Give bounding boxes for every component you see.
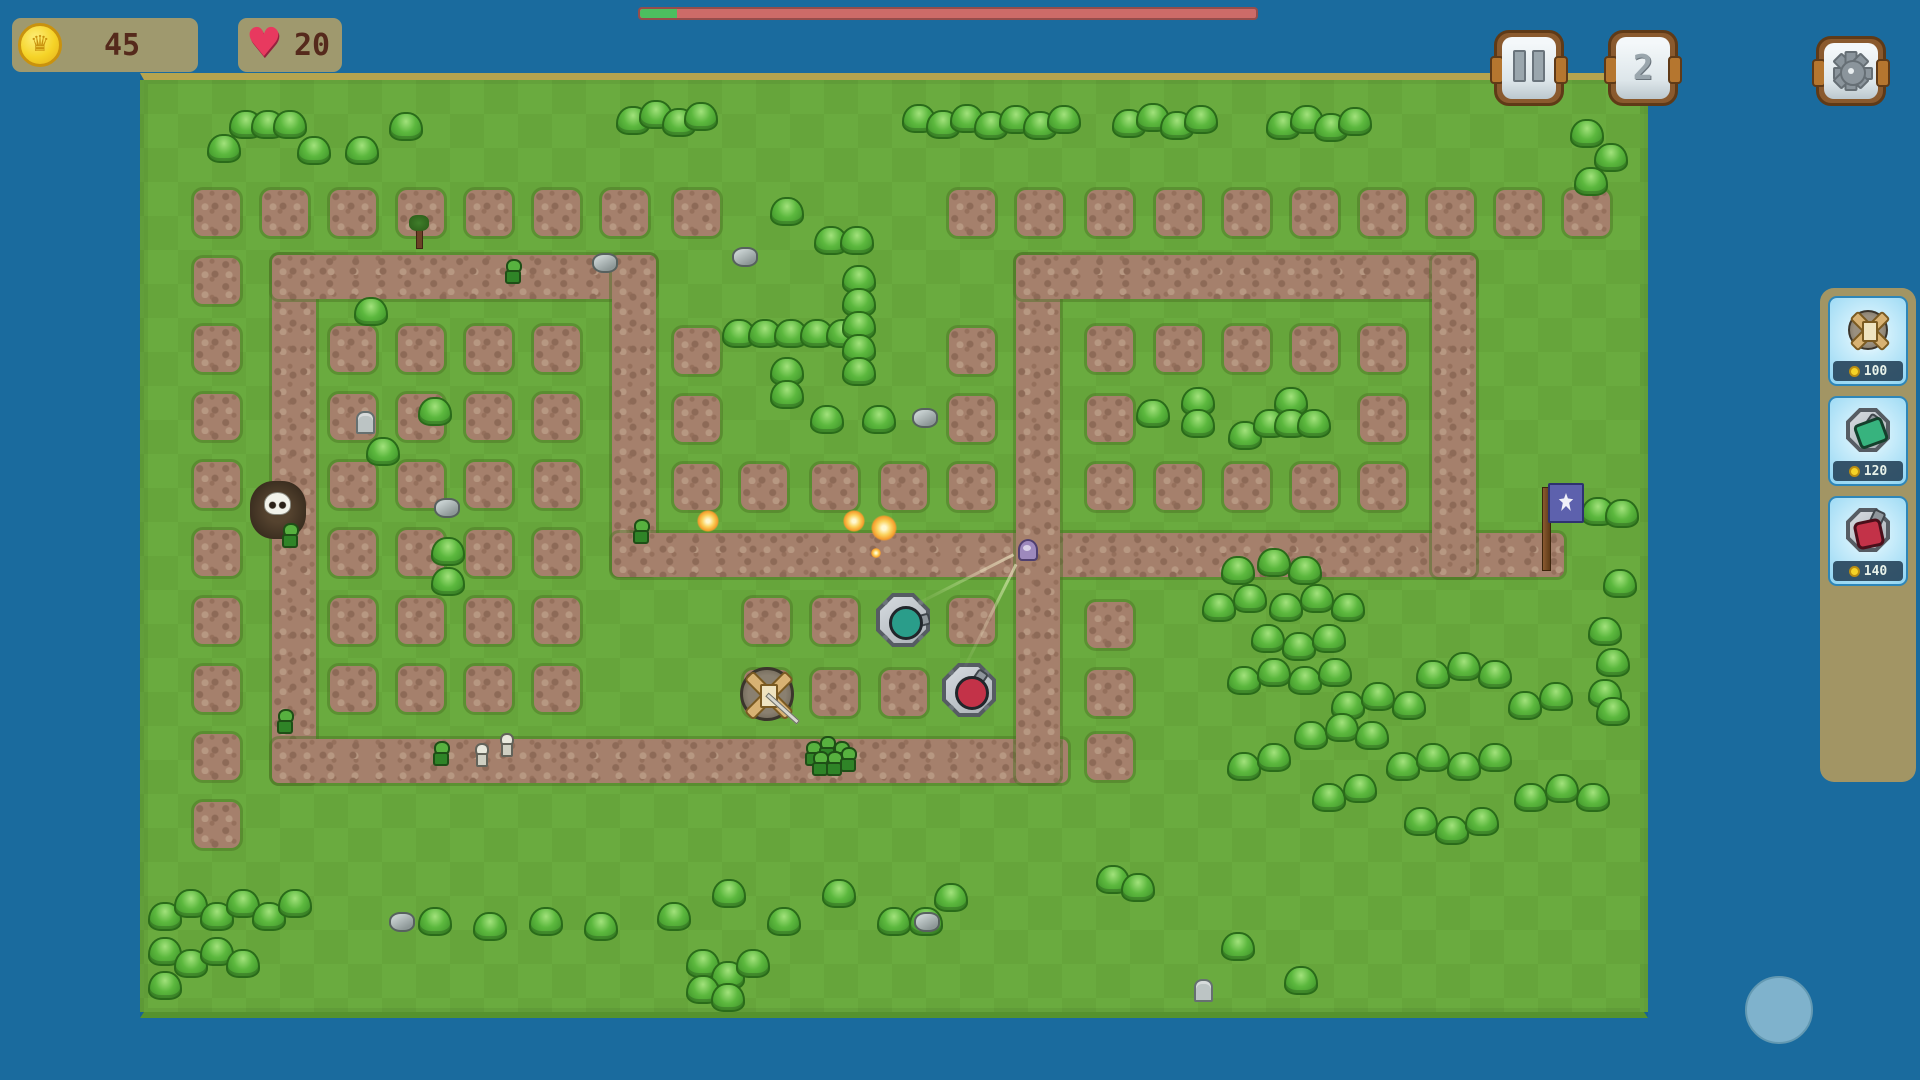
enemy-goblin — [276, 709, 292, 732]
goal-flag-icon — [1548, 483, 1584, 523]
bush — [684, 102, 718, 131]
game-map[interactable] — [140, 73, 1648, 1018]
bush — [1312, 783, 1346, 812]
price-label: 100 — [1864, 364, 1887, 379]
bush — [736, 949, 770, 978]
dirt-patch — [1087, 190, 1133, 236]
dirt-patch — [1292, 326, 1338, 372]
bush — [1269, 593, 1303, 622]
dirt-patch — [398, 666, 444, 712]
dirt-patch — [1017, 190, 1063, 236]
dirt-path-segment — [1432, 255, 1476, 577]
dead-tree — [409, 215, 429, 249]
dirt-patch — [1087, 396, 1133, 442]
bush — [1300, 584, 1334, 613]
price-label: 120 — [1864, 464, 1887, 479]
bush — [1227, 666, 1261, 695]
bush — [1596, 648, 1630, 677]
bush — [1576, 783, 1610, 812]
enemy-ghost — [1018, 539, 1038, 561]
dirt-patch — [1564, 190, 1610, 236]
dirt-path-segment — [272, 739, 1068, 783]
bush — [810, 405, 844, 434]
enemy-goblin — [432, 741, 448, 764]
bush — [226, 949, 260, 978]
dirt-patch — [194, 598, 240, 644]
bush — [1221, 556, 1255, 585]
bush — [1288, 556, 1322, 585]
rock — [732, 247, 758, 267]
coin-icon: ♛ — [18, 23, 62, 67]
wave-progress-bar — [638, 7, 1258, 20]
bush — [1282, 632, 1316, 661]
dirt-path-segment — [612, 533, 1564, 577]
bush — [1508, 691, 1542, 720]
bush — [389, 112, 423, 141]
bush — [366, 437, 400, 466]
dirt-patch — [466, 190, 512, 236]
gravestone — [356, 411, 375, 434]
dirt-patch — [194, 802, 240, 848]
dirt-patch — [466, 462, 512, 508]
lives-count: 20 — [294, 28, 330, 63]
dirt-path-segment — [1016, 255, 1060, 783]
bush — [1338, 107, 1372, 136]
bush — [1294, 721, 1328, 750]
coin-count: 45 — [104, 28, 140, 63]
gear-icon — [1829, 49, 1873, 93]
bush — [770, 380, 804, 409]
bush — [1288, 666, 1322, 695]
dirt-patch — [1360, 464, 1406, 510]
bush — [1545, 774, 1579, 803]
bush — [1184, 105, 1218, 134]
dirt-patch — [812, 670, 858, 716]
rock — [434, 498, 460, 518]
coin-icon — [1849, 566, 1860, 577]
coin-icon — [1849, 466, 1860, 477]
bush — [767, 907, 801, 936]
coin-counter-panel: ♛ 45 — [12, 18, 198, 72]
dirt-patch — [466, 666, 512, 712]
wave-progress-fill — [640, 9, 677, 18]
bush — [1570, 119, 1604, 148]
dirt-patch — [194, 190, 240, 236]
bush — [297, 136, 331, 165]
dirt-patch — [1156, 464, 1202, 510]
explosion-effect — [871, 515, 897, 541]
dirt-patch — [1224, 464, 1270, 510]
dirt-patch — [1496, 190, 1542, 236]
enemy-skeleton — [474, 743, 488, 765]
speed-button[interactable]: 2 — [1608, 30, 1678, 106]
dirt-patch — [534, 326, 580, 372]
enemy-skeleton — [499, 733, 513, 755]
dirt-patch — [534, 462, 580, 508]
price-label: 140 — [1864, 564, 1887, 579]
dirt-patch — [194, 258, 240, 304]
bush — [418, 397, 452, 426]
dirt-patch — [534, 598, 580, 644]
dirt-patch — [881, 464, 927, 510]
dirt-patch — [330, 326, 376, 372]
bush — [1121, 873, 1155, 902]
bush — [842, 357, 876, 386]
shop-card-crossbow-tower[interactable]: 100 — [1828, 296, 1908, 386]
dirt-patch — [194, 326, 240, 372]
dirt-patch — [398, 598, 444, 644]
dirt-patch — [949, 464, 995, 510]
dirt-patch — [1087, 464, 1133, 510]
dirt-patch — [602, 190, 648, 236]
shop-card-red-cannon-tower[interactable]: 140 — [1828, 496, 1908, 586]
bush — [473, 912, 507, 941]
dirt-patch — [674, 464, 720, 510]
bush — [1227, 752, 1261, 781]
dirt-patch — [674, 396, 720, 442]
dirt-patch — [466, 598, 512, 644]
dirt-patch — [398, 326, 444, 372]
dirt-patch — [534, 666, 580, 712]
settings-button[interactable] — [1816, 36, 1886, 106]
dirt-patch — [1156, 190, 1202, 236]
bush — [1392, 691, 1426, 720]
dirt-patch — [1087, 734, 1133, 780]
dirt-patch — [534, 530, 580, 576]
speed-label: 2 — [1633, 48, 1653, 88]
dirt-patch — [1360, 190, 1406, 236]
bush — [1603, 569, 1637, 598]
bush — [1435, 816, 1469, 845]
rock — [389, 912, 415, 932]
bush — [934, 883, 968, 912]
cannon-tower[interactable] — [942, 663, 996, 717]
dirt-patch — [741, 464, 787, 510]
dirt-patch — [812, 598, 858, 644]
bush — [273, 110, 307, 139]
bush — [148, 971, 182, 1000]
dirt-patch — [330, 666, 376, 712]
bush — [1297, 409, 1331, 438]
bush — [1404, 807, 1438, 836]
bush — [584, 912, 618, 941]
enemy-goblin — [839, 747, 855, 770]
dirt-patch — [194, 666, 240, 712]
dirt-patch — [674, 328, 720, 374]
heart-icon: ♥ — [246, 20, 282, 66]
bush — [1465, 807, 1499, 836]
enemy-goblin — [632, 519, 648, 542]
dirt-patch — [1428, 190, 1474, 236]
dirt-patch — [812, 464, 858, 510]
bush — [1447, 752, 1481, 781]
explosion-effect — [697, 510, 719, 532]
dirt-patch — [534, 394, 580, 440]
bush — [1312, 624, 1346, 653]
bush — [1588, 617, 1622, 646]
dirt-patch — [194, 530, 240, 576]
dirt-patch — [262, 190, 308, 236]
bush — [822, 879, 856, 908]
bush — [1257, 548, 1291, 577]
dirt-patch — [881, 670, 927, 716]
bush — [1478, 660, 1512, 689]
rock — [914, 912, 940, 932]
bush — [1318, 658, 1352, 687]
dirt-patch — [194, 462, 240, 508]
pause-icon — [1510, 50, 1548, 87]
bush — [1233, 584, 1267, 613]
bush — [207, 134, 241, 163]
bush — [354, 297, 388, 326]
dirt-patch — [466, 530, 512, 576]
bush — [1221, 932, 1255, 961]
bush — [1416, 743, 1450, 772]
dirt-patch — [534, 190, 580, 236]
bush — [1325, 713, 1359, 742]
dirt-patch — [674, 190, 720, 236]
bush — [431, 567, 465, 596]
dirt-patch — [1292, 190, 1338, 236]
bush — [1343, 774, 1377, 803]
bush — [1355, 721, 1389, 750]
bush — [877, 907, 911, 936]
dirt-patch — [466, 326, 512, 372]
dirt-patch — [1360, 396, 1406, 442]
pause-button[interactable] — [1494, 30, 1564, 106]
rock — [592, 253, 618, 273]
bush — [1181, 409, 1215, 438]
bush — [657, 902, 691, 931]
dirt-patch — [330, 190, 376, 236]
explosion-effect — [871, 548, 881, 558]
bush — [840, 226, 874, 255]
dirt-patch — [1292, 464, 1338, 510]
dirt-patch — [330, 530, 376, 576]
dirt-patch — [744, 598, 790, 644]
coin-icon — [1849, 366, 1860, 377]
bush — [418, 907, 452, 936]
bush — [1447, 652, 1481, 681]
enemy-goblin — [281, 523, 297, 546]
bush — [278, 889, 312, 918]
spawn-skull-icon — [264, 492, 291, 515]
tower-shop-panel: 100 120 140 — [1820, 288, 1916, 782]
dirt-patch — [194, 734, 240, 780]
bush — [1416, 660, 1450, 689]
bush — [1047, 105, 1081, 134]
dirt-patch — [949, 396, 995, 442]
bush — [1257, 743, 1291, 772]
game-screen: { "hud": { "coins": {"value": "45", "ico… — [0, 0, 1920, 1080]
rock — [912, 408, 938, 428]
bush — [1284, 966, 1318, 995]
bush — [1539, 682, 1573, 711]
dirt-patch — [949, 328, 995, 374]
bush — [431, 537, 465, 566]
bush — [1386, 752, 1420, 781]
lives-counter-panel: ♥ 20 — [238, 18, 342, 72]
bush — [1202, 593, 1236, 622]
bush — [1257, 658, 1291, 687]
crossbow-tower[interactable] — [740, 667, 794, 721]
bush — [1331, 593, 1365, 622]
dirt-patch — [466, 394, 512, 440]
shop-card-green-cannon-tower[interactable]: 120 — [1828, 396, 1908, 486]
dirt-patch — [1156, 326, 1202, 372]
bush — [711, 983, 745, 1012]
dirt-patch — [1087, 326, 1133, 372]
bush — [1605, 499, 1639, 528]
dirt-patch — [1224, 190, 1270, 236]
bush — [1478, 743, 1512, 772]
dirt-path-segment — [1016, 255, 1476, 299]
dirt-patch — [330, 462, 376, 508]
bush — [862, 405, 896, 434]
dirt-patch — [1087, 670, 1133, 716]
bush — [345, 136, 379, 165]
bush — [1251, 624, 1285, 653]
dirt-patch — [330, 598, 376, 644]
explosion-effect — [843, 510, 865, 532]
dirt-patch — [949, 190, 995, 236]
joystick-button[interactable] — [1745, 976, 1813, 1044]
bush — [529, 907, 563, 936]
bush — [1574, 167, 1608, 196]
bush — [1596, 697, 1630, 726]
dirt-patch — [194, 394, 240, 440]
dirt-patch — [1087, 602, 1133, 648]
dirt-patch — [1360, 326, 1406, 372]
bush — [1514, 783, 1548, 812]
bush — [1136, 399, 1170, 428]
gravestone — [1194, 979, 1213, 1002]
dirt-patch — [1224, 326, 1270, 372]
bush — [712, 879, 746, 908]
enemy-goblin — [504, 259, 520, 282]
bush — [1361, 682, 1395, 711]
bush — [770, 197, 804, 226]
